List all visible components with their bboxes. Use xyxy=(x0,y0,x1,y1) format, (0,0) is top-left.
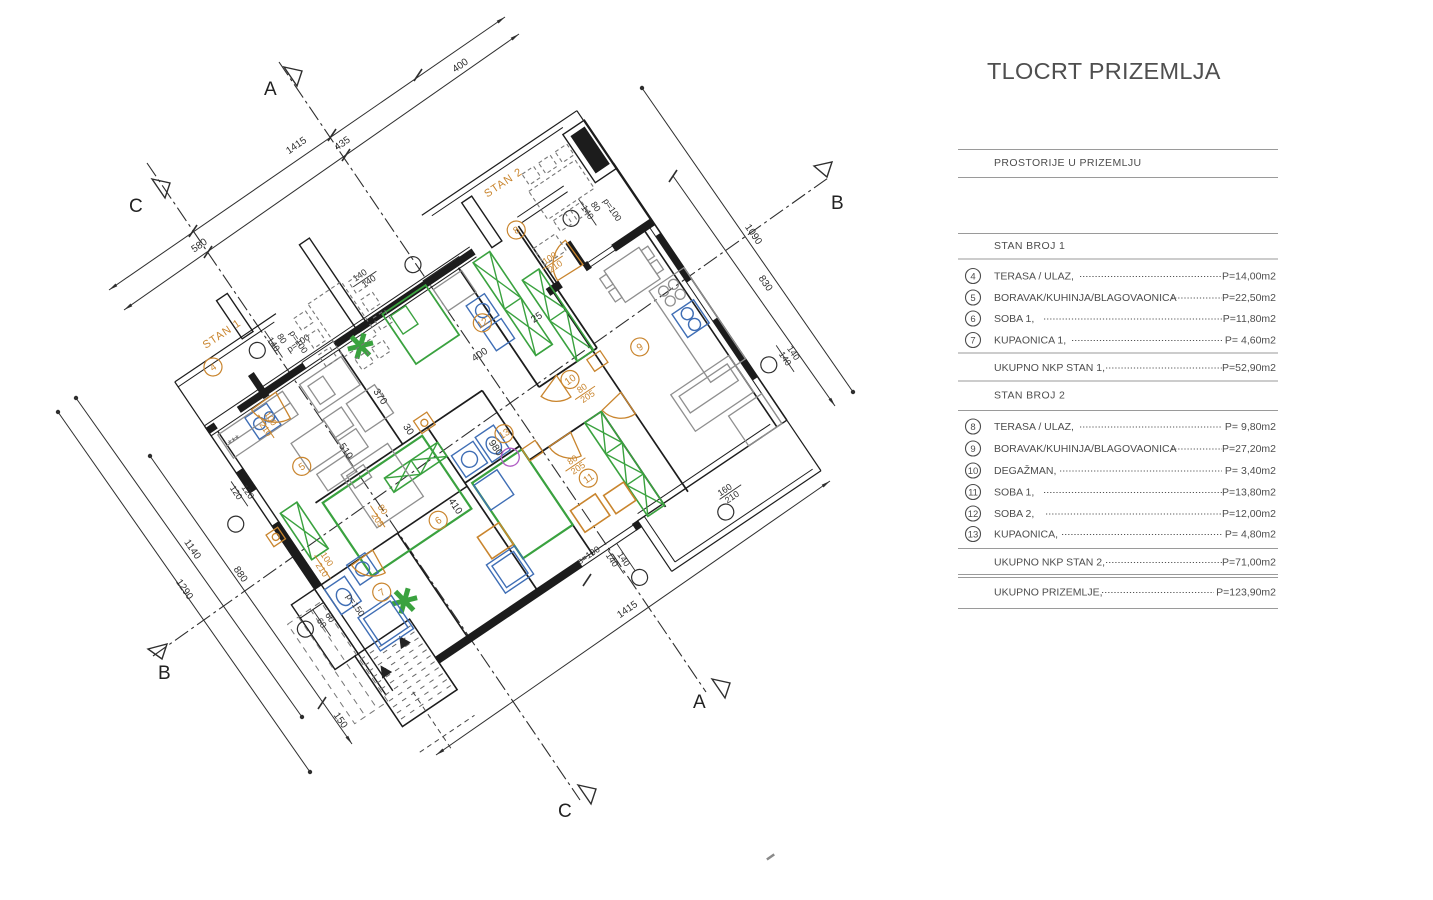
svg-text:P=14,00m2: P=14,00m2 xyxy=(1222,271,1276,283)
svg-text:7: 7 xyxy=(970,336,975,347)
svg-text:B: B xyxy=(158,663,171,684)
svg-text:P=13,80m2: P=13,80m2 xyxy=(1222,487,1276,499)
svg-text:P=12,00m2: P=12,00m2 xyxy=(1222,508,1276,520)
svg-text:10: 10 xyxy=(968,466,979,477)
svg-text:KUPAONICA,: KUPAONICA, xyxy=(994,529,1058,541)
svg-text:4: 4 xyxy=(970,272,975,283)
svg-text:C: C xyxy=(129,196,143,217)
svg-text:DEGAŽMAN,: DEGAŽMAN, xyxy=(994,464,1056,477)
svg-text:6: 6 xyxy=(970,314,975,325)
svg-text:SOBA 1,: SOBA 1, xyxy=(994,487,1034,499)
svg-text:9: 9 xyxy=(970,444,975,455)
svg-text:UKUPNO NKP STAN 2,: UKUPNO NKP STAN 2, xyxy=(994,557,1105,569)
svg-text:12: 12 xyxy=(968,509,979,520)
svg-text:P= 4,80m2: P= 4,80m2 xyxy=(1225,529,1276,541)
svg-text:A: A xyxy=(693,692,706,713)
svg-text:SOBA 2,: SOBA 2, xyxy=(994,508,1034,520)
svg-text:P=11,80m2: P=11,80m2 xyxy=(1223,313,1276,325)
svg-text:TLOCRT PRIZEMLJA: TLOCRT PRIZEMLJA xyxy=(987,58,1221,84)
svg-text:A: A xyxy=(264,79,277,100)
svg-text:11: 11 xyxy=(968,488,978,499)
svg-text:TERASA / ULAZ,: TERASA / ULAZ, xyxy=(994,421,1074,433)
svg-text:P= 4,60m2: P= 4,60m2 xyxy=(1225,335,1276,347)
svg-text:8: 8 xyxy=(970,422,975,433)
svg-text:SOBA 1,: SOBA 1, xyxy=(994,313,1034,325)
svg-text:5: 5 xyxy=(970,293,975,304)
svg-text:P=27,20m2: P=27,20m2 xyxy=(1222,443,1276,455)
svg-text:P=123,90m2: P=123,90m2 xyxy=(1216,587,1276,599)
svg-text:STAN BROJ 1: STAN BROJ 1 xyxy=(994,240,1065,252)
svg-text:UKUPNO NKP STAN 1,: UKUPNO NKP STAN 1, xyxy=(994,362,1105,374)
svg-text:P= 9,80m2: P= 9,80m2 xyxy=(1225,421,1276,433)
svg-text:13: 13 xyxy=(968,530,979,541)
svg-text:PROSTORIJE U PRIZEMLJU: PROSTORIJE U PRIZEMLJU xyxy=(994,157,1141,169)
svg-text:TERASA / ULAZ,: TERASA / ULAZ, xyxy=(994,271,1074,283)
svg-text:UKUPNO PRIZEMLJE,: UKUPNO PRIZEMLJE, xyxy=(994,587,1103,599)
svg-text:P=71,00m2: P=71,00m2 xyxy=(1222,557,1276,569)
svg-text:P=22,50m2: P=22,50m2 xyxy=(1222,292,1276,304)
svg-text:KUPAONICA 1,: KUPAONICA 1, xyxy=(994,335,1066,347)
svg-text:BORAVAK/KUHINJA/BLAGOVAONICA: BORAVAK/KUHINJA/BLAGOVAONICA xyxy=(994,443,1177,455)
svg-text:P=52,90m2: P=52,90m2 xyxy=(1222,362,1276,374)
svg-text:B: B xyxy=(831,193,844,214)
svg-text:BORAVAK/KUHINJA/BLAGOVAONICA: BORAVAK/KUHINJA/BLAGOVAONICA xyxy=(994,292,1177,304)
svg-text:STAN BROJ 2: STAN BROJ 2 xyxy=(994,390,1065,402)
svg-text:P= 3,40m2: P= 3,40m2 xyxy=(1225,465,1276,477)
svg-text:C: C xyxy=(558,801,572,822)
